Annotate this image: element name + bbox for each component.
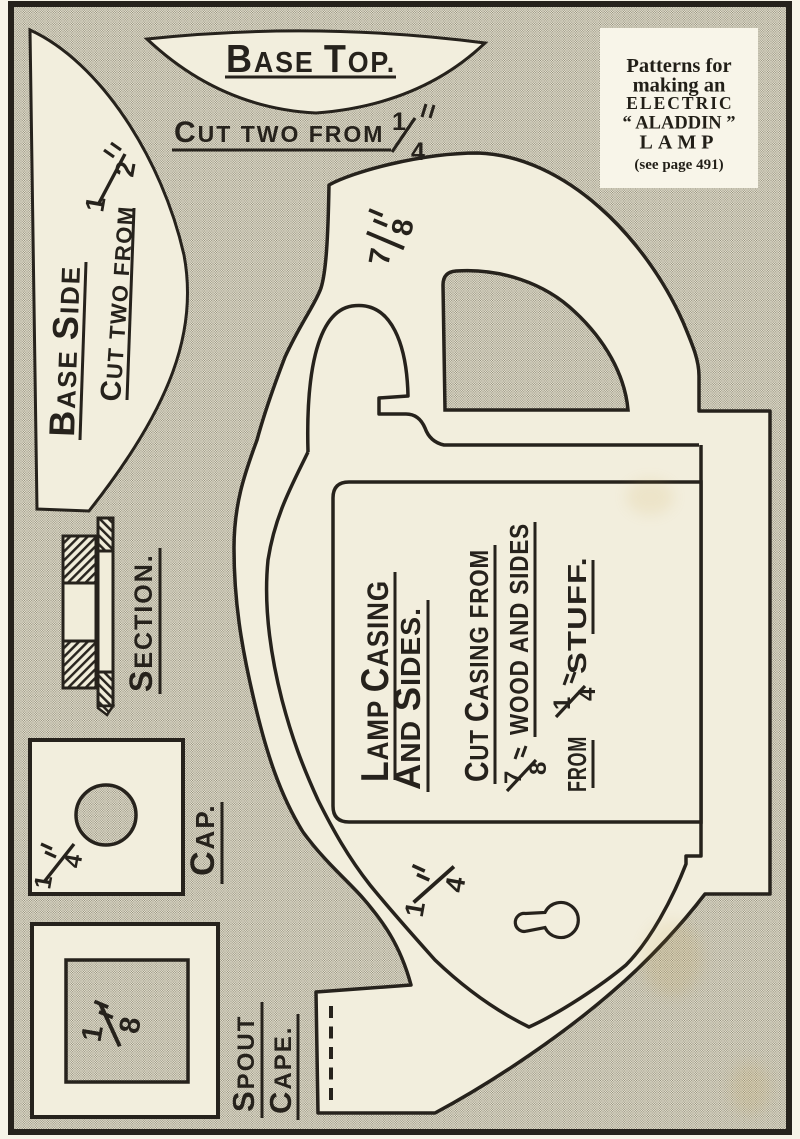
svg-text:CUT TWO FROM: CUT TWO FROM	[174, 116, 384, 149]
svg-text:“ ALADDIN ”: “ ALADDIN ”	[622, 114, 735, 134]
svg-text:7: 7	[500, 771, 527, 784]
svg-text:1: 1	[549, 697, 576, 710]
svg-text:CAP.: CAP.	[184, 803, 222, 876]
svg-text:WOOD AND SIDES: WOOD AND SIDES	[504, 523, 534, 735]
svg-text:8: 8	[525, 762, 552, 775]
svg-text:4: 4	[411, 138, 425, 166]
svg-text:STUFF.: STUFF.	[562, 556, 592, 674]
svg-text:ELECTRIC: ELECTRIC	[626, 93, 733, 113]
svg-text:LAMP: LAMP	[640, 132, 719, 154]
svg-text:(see page 491): (see page 491)	[634, 157, 723, 173]
svg-text:4: 4	[574, 687, 601, 701]
svg-text:CUT CASING FROM: CUT CASING FROM	[458, 549, 495, 782]
svg-text:FROM: FROM	[562, 736, 592, 792]
